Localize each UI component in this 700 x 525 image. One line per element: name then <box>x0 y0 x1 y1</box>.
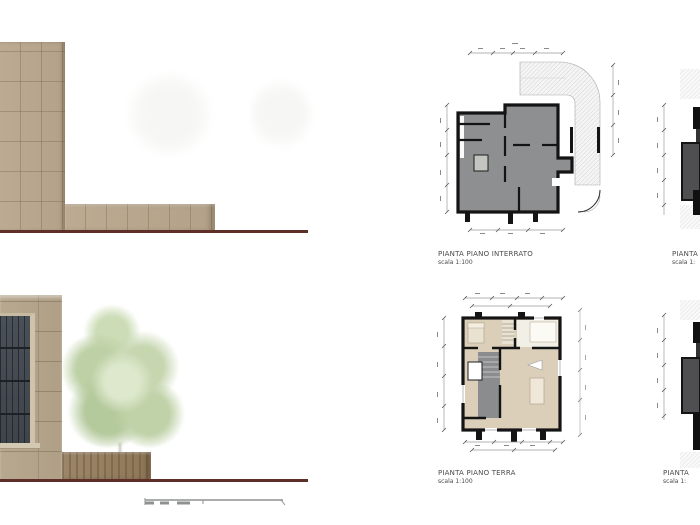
partial-top-plan-label: PIANTA scala 1: <box>672 250 700 267</box>
partial-plan-bottom <box>652 300 700 490</box>
tree-foliage <box>89 351 155 413</box>
partial-top-plan-title: PIANTA <box>672 250 700 259</box>
dimension-chain-bottom <box>463 440 565 452</box>
storage-niche <box>474 155 488 171</box>
bed <box>530 322 556 342</box>
ground-plan-title: PIANTA PIANO TERRA <box>438 469 516 478</box>
dimension-chain-top <box>463 293 565 308</box>
table <box>530 378 544 404</box>
tree <box>55 293 190 463</box>
elevation-top-low-wall <box>65 204 215 231</box>
basement-plan-scale: scala 1:100 <box>438 259 533 267</box>
dimension-chain <box>657 313 666 420</box>
elevation-top-ground-line <box>0 230 308 233</box>
dimension-chain-right <box>578 308 586 437</box>
dimension-chain <box>657 103 666 215</box>
basement-floor-plan <box>430 40 625 245</box>
basement-plan-label: PIANTA PIANO INTERRATO scala 1:100 <box>438 250 533 267</box>
ground-plan-label: PIANTA PIANO TERRA scala 1:100 <box>438 469 516 486</box>
faint-tree-ghost <box>250 74 312 154</box>
door-opening <box>552 178 560 186</box>
wall-recess <box>460 116 464 158</box>
bath-fixture <box>468 362 482 380</box>
planter-wall <box>62 452 151 480</box>
window-sill <box>0 443 40 449</box>
basement-plan-body <box>458 105 572 224</box>
dimension-chain-left <box>437 316 446 432</box>
ground-floor-plan <box>430 290 625 465</box>
dimension-chain-bottom <box>468 228 565 234</box>
partial-bottom-plan-title: PIANTA <box>663 469 700 478</box>
basement-plan-title: PIANTA PIANO INTERRATO <box>438 250 533 259</box>
graphic-scale-bar <box>143 495 291 509</box>
partial-top-plan-scale: scala 1: <box>672 259 700 267</box>
dimension-chain-left <box>440 103 449 214</box>
partial-plan-top <box>652 55 700 240</box>
ground-plan-scale: scala 1:100 <box>438 478 516 486</box>
ground-plan-body <box>461 312 562 442</box>
partial-bottom-plan-scale: scala 1: <box>663 478 700 486</box>
elevation-bottom-ground-line <box>0 479 308 482</box>
dimension-chain-top <box>468 43 565 55</box>
facade-window <box>0 313 35 446</box>
dimension-chain-right <box>611 63 619 157</box>
drawing-sheet: PIANTA PIANO INTERRATO scala 1:100 PIANT… <box>0 0 700 525</box>
elevation-top-tower <box>0 42 65 231</box>
faint-tree-ghost <box>122 72 217 157</box>
partial-bottom-plan-label: PIANTA scala 1: <box>663 469 700 486</box>
